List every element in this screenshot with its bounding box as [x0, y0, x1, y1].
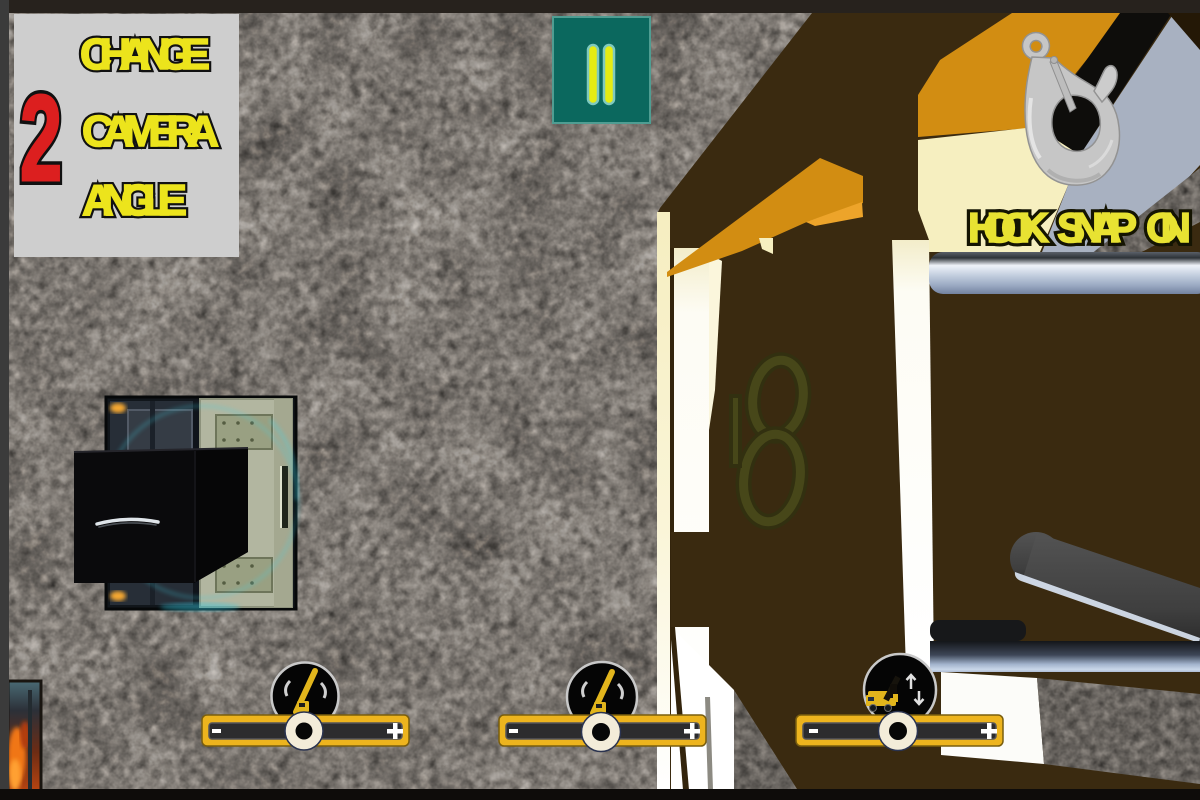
svg-text:SNAP: SNAP	[1057, 204, 1137, 251]
svg-text:CAMERA: CAMERA	[82, 107, 219, 156]
svg-text:ANGLE: ANGLE	[82, 176, 187, 225]
svg-text:2: 2	[20, 69, 62, 206]
svg-text:ON: ON	[1146, 204, 1191, 251]
svg-text:HOOK: HOOK	[968, 204, 1049, 251]
svg-text:CHANGE: CHANGE	[80, 30, 210, 79]
